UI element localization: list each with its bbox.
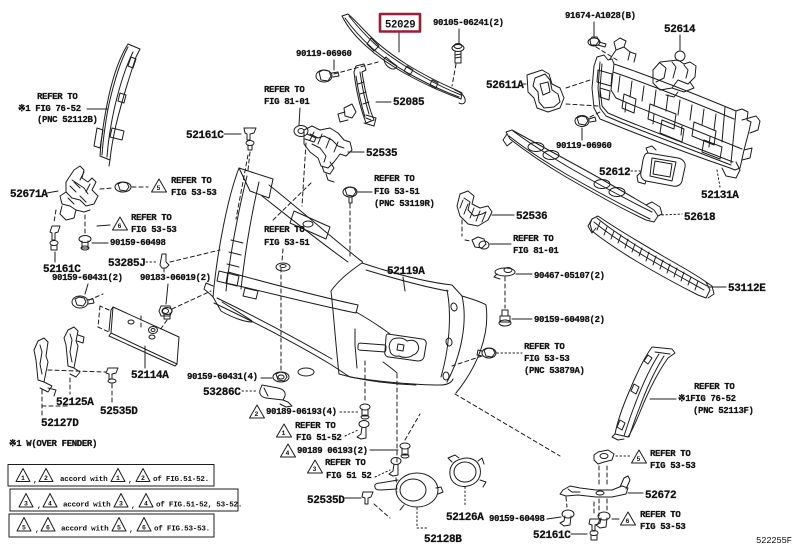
svg-text:REFER TO: REFER TO	[694, 382, 735, 392]
svg-text:※1 FIG 76-52: ※1 FIG 76-52	[18, 104, 81, 114]
svg-text:90105-06241(2): 90105-06241(2)	[433, 18, 504, 28]
svg-text:52535: 52535	[366, 148, 398, 160]
svg-text:5: 5	[22, 525, 26, 532]
svg-text:90467-05107(2): 90467-05107(2)	[534, 271, 605, 281]
svg-text:2: 2	[141, 475, 145, 482]
svg-text:52161C: 52161C	[533, 530, 571, 542]
svg-text:52114A: 52114A	[131, 370, 169, 382]
svg-text:52611A: 52611A	[486, 80, 524, 92]
svg-text:90119-06960: 90119-06960	[556, 141, 612, 151]
svg-text:REFER TO: REFER TO	[325, 458, 366, 468]
svg-text:accord with: accord with	[60, 476, 108, 484]
svg-text:of FIG.53-53.: of FIG.53-53.	[154, 526, 210, 534]
svg-text:REFER TO: REFER TO	[513, 234, 554, 244]
svg-text:52535D: 52535D	[307, 495, 345, 507]
svg-text:REFER TO: REFER TO	[650, 449, 691, 459]
svg-text:4: 4	[286, 450, 290, 457]
svg-text:※1 W(OVER FENDER): ※1 W(OVER FENDER)	[9, 439, 97, 449]
svg-text:52085: 52085	[393, 97, 425, 109]
svg-text:52126A: 52126A	[446, 512, 484, 524]
svg-text:52119A: 52119A	[387, 266, 425, 278]
svg-text:3: 3	[119, 501, 123, 508]
svg-text:(PNC 52112B): (PNC 52112B)	[37, 115, 98, 125]
svg-text:5: 5	[637, 456, 641, 463]
svg-text:REFER TO: REFER TO	[640, 510, 681, 520]
svg-text:FIG 53-53: FIG 53-53	[524, 354, 569, 364]
svg-text:REFER TO: REFER TO	[264, 225, 305, 235]
svg-text:FIG 51-52: FIG 51-52	[296, 433, 341, 443]
svg-text:FIG 53-53: FIG 53-53	[171, 188, 216, 198]
svg-text:accord with: accord with	[61, 526, 109, 534]
svg-text:FIG 53-53: FIG 53-53	[131, 225, 176, 235]
svg-text:52618: 52618	[684, 212, 716, 224]
svg-text:accord with: accord with	[63, 502, 111, 510]
svg-text:FIG 53-53: FIG 53-53	[650, 461, 695, 471]
svg-text:4: 4	[48, 501, 52, 508]
svg-text:52535D: 52535D	[100, 406, 138, 418]
svg-text:52127D: 52127D	[41, 418, 79, 430]
svg-text:522255F: 522255F	[756, 536, 792, 546]
svg-text:(PNC 53879A): (PNC 53879A)	[524, 366, 585, 376]
svg-text:52029: 52029	[385, 20, 415, 32]
svg-text:,: ,	[33, 477, 37, 485]
svg-text:,: ,	[131, 503, 135, 511]
svg-text:52536: 52536	[516, 211, 547, 223]
svg-text:FIG 81-01: FIG 81-01	[513, 246, 559, 256]
svg-text:REFER TO: REFER TO	[524, 342, 565, 352]
svg-text:52672: 52672	[645, 490, 676, 502]
svg-text:FIG 53-53: FIG 53-53	[640, 522, 685, 532]
svg-text:REFER TO: REFER TO	[374, 174, 415, 184]
svg-text:90189 06193(2): 90189 06193(2)	[297, 446, 368, 456]
svg-text:52125A: 52125A	[56, 397, 94, 409]
svg-text:6: 6	[46, 525, 50, 532]
svg-text:52612: 52612	[599, 167, 630, 179]
svg-text:52671A: 52671A	[10, 189, 48, 201]
svg-text:4: 4	[144, 501, 148, 508]
svg-text:2: 2	[44, 475, 48, 482]
svg-text:,: ,	[35, 527, 39, 535]
svg-text:52131A: 52131A	[701, 190, 739, 202]
svg-text:53112E: 53112E	[728, 283, 766, 295]
svg-text:52161C: 52161C	[186, 130, 224, 142]
svg-text:1: 1	[21, 475, 25, 482]
svg-text:※1FIG 76-52: ※1FIG 76-52	[678, 394, 736, 404]
svg-text:REFER TO: REFER TO	[131, 213, 172, 223]
svg-text:REFER TO: REFER TO	[37, 92, 78, 102]
svg-text:FIG 51 52: FIG 51 52	[326, 471, 371, 481]
svg-text:of FIG.51-52, 53-52.: of FIG.51-52, 53-52.	[156, 502, 242, 510]
svg-text:REFER TO: REFER TO	[264, 85, 305, 95]
svg-text:2: 2	[255, 411, 259, 418]
svg-text:53285J: 53285J	[108, 258, 146, 270]
svg-text:of FIG.51-52.: of FIG.51-52.	[153, 476, 209, 484]
svg-text:REFER TO: REFER TO	[295, 421, 336, 431]
svg-text:90159-60498: 90159-60498	[489, 514, 545, 524]
svg-text:90159-60498: 90159-60498	[110, 238, 166, 248]
svg-text:53286C: 53286C	[203, 387, 241, 399]
svg-text:,: ,	[128, 477, 132, 485]
svg-text:,: ,	[129, 527, 133, 535]
svg-text:1: 1	[282, 430, 286, 437]
svg-text:5: 5	[117, 525, 121, 532]
svg-text:52614: 52614	[664, 24, 696, 36]
svg-text:(PNC 53119R): (PNC 53119R)	[374, 199, 435, 209]
svg-text:6: 6	[142, 525, 146, 532]
svg-text:FIG 53-51: FIG 53-51	[264, 238, 310, 248]
svg-text:91674-A1028(B): 91674-A1028(B)	[565, 11, 636, 21]
svg-text:6: 6	[626, 518, 630, 525]
svg-text:,: ,	[37, 503, 41, 511]
svg-text:90159-60431(2): 90159-60431(2)	[52, 273, 123, 283]
svg-text:6: 6	[118, 223, 122, 230]
svg-text:3: 3	[24, 501, 28, 508]
svg-text:90159-60498(2): 90159-60498(2)	[534, 315, 605, 325]
svg-text:90119-06960: 90119-06960	[296, 49, 352, 59]
svg-text:FIG 81-01: FIG 81-01	[264, 97, 310, 107]
svg-text:5: 5	[157, 185, 161, 192]
svg-text:52128B: 52128B	[424, 534, 462, 546]
svg-text:90189-06193(4): 90189-06193(4)	[266, 407, 337, 417]
svg-text:1: 1	[116, 475, 120, 482]
svg-text:90159-60431(4): 90159-60431(4)	[187, 372, 258, 382]
svg-text:REFER TO: REFER TO	[171, 176, 212, 186]
svg-text:90183-06019(2): 90183-06019(2)	[140, 273, 211, 283]
svg-text:(PNC 52113F): (PNC 52113F)	[693, 406, 754, 416]
svg-text:3: 3	[313, 466, 317, 473]
svg-text:FIG 53-51: FIG 53-51	[374, 187, 420, 197]
